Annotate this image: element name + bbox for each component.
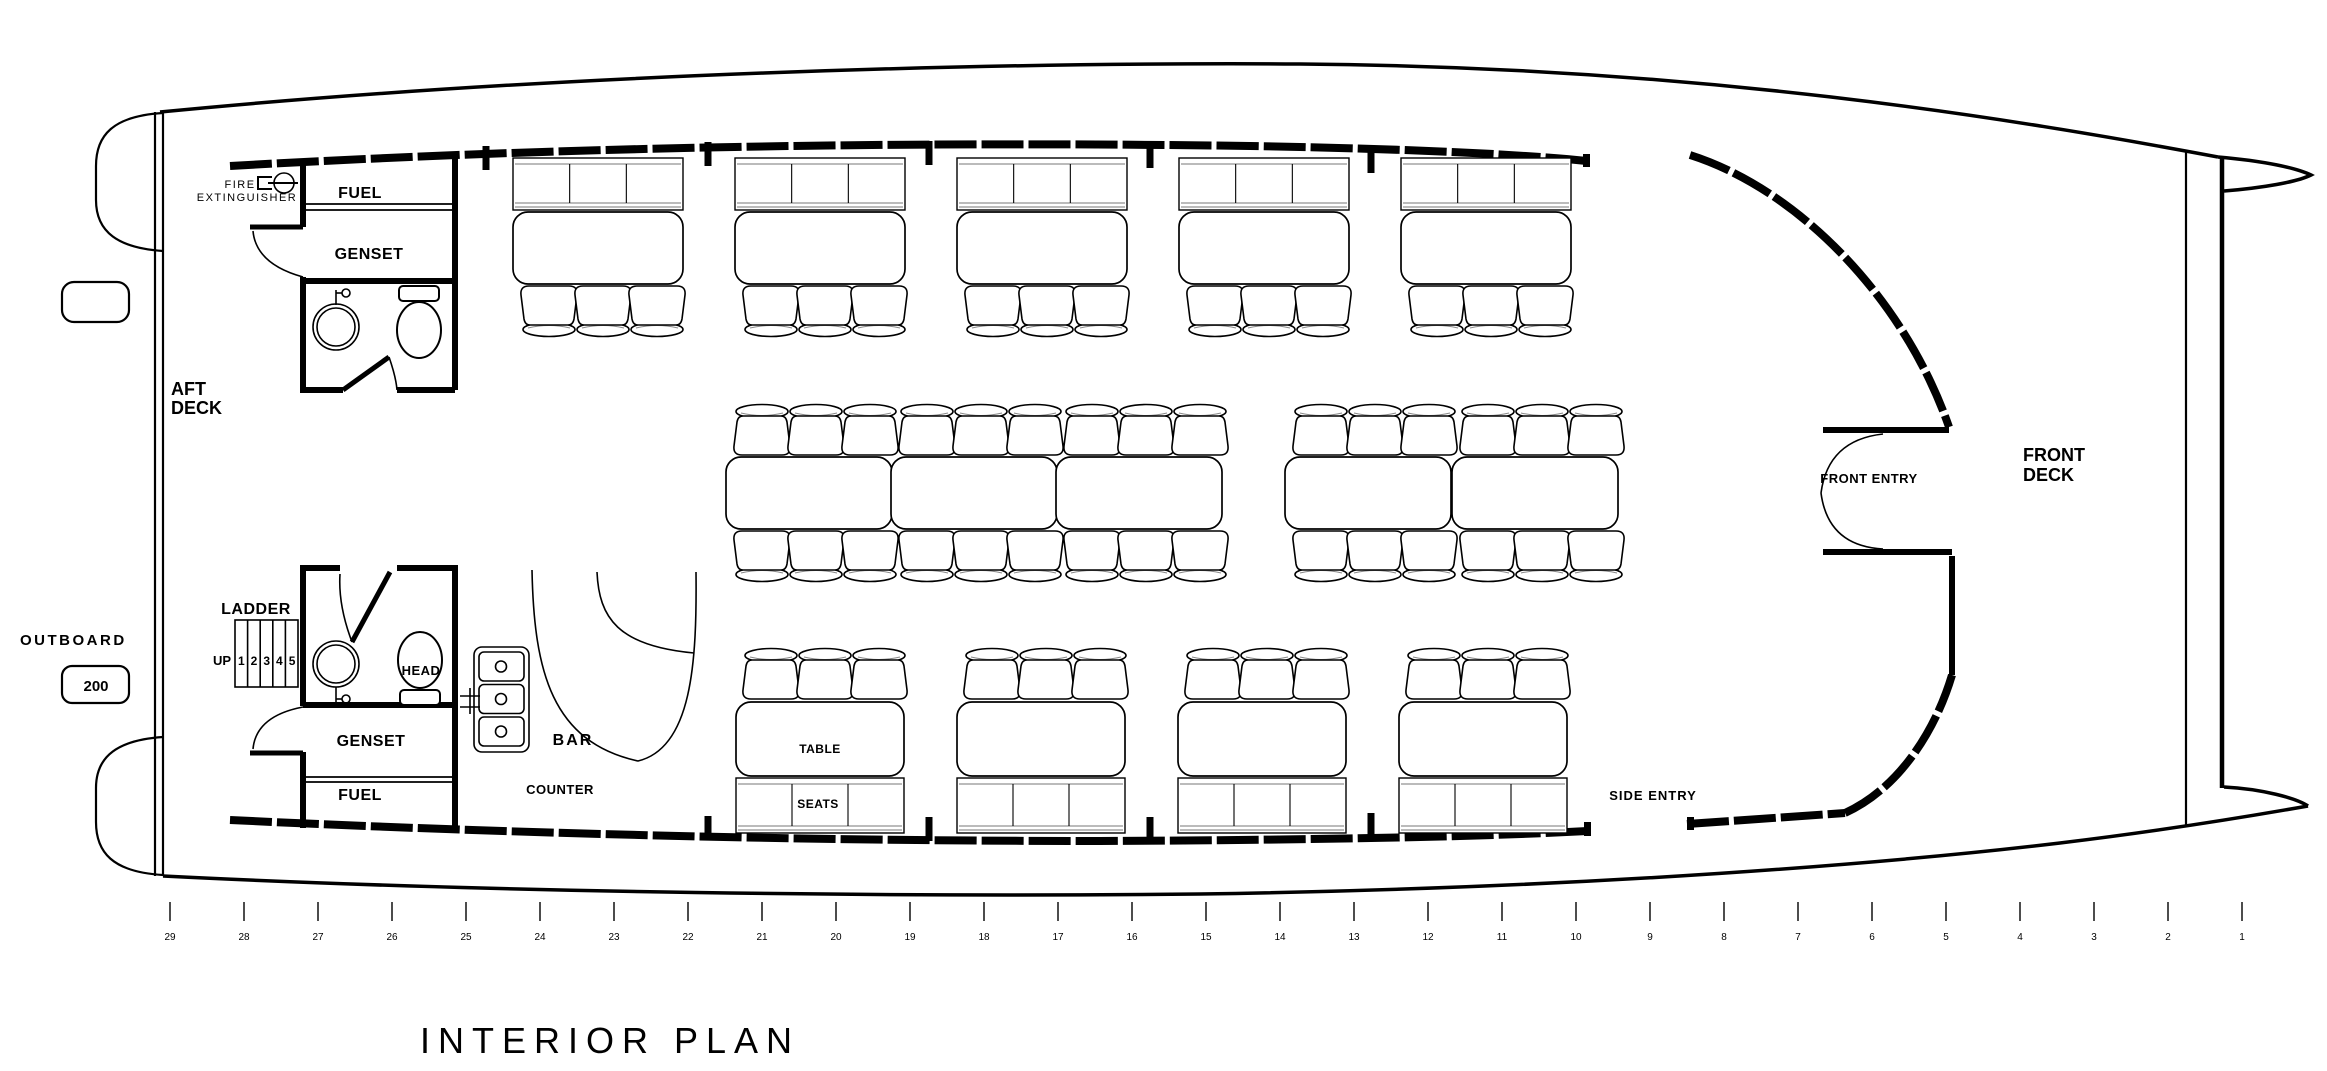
- station-ruler: 2928272625242322212019181716151413121110…: [164, 902, 2245, 943]
- ruler-label: 25: [460, 932, 472, 943]
- ruler-label: 12: [1422, 932, 1434, 943]
- toilet-icon: [397, 302, 441, 358]
- ruler-label: 11: [1497, 932, 1508, 943]
- label-ladder-up: UP: [213, 653, 231, 668]
- ladder-step-label: 1: [238, 654, 245, 668]
- bench-seat: [1178, 778, 1346, 833]
- ruler-label: 18: [978, 932, 990, 943]
- chair-icon: [629, 286, 685, 337]
- table: [957, 212, 1127, 284]
- chair-icon: [851, 286, 907, 337]
- label-side-entry: SIDE ENTRY: [1609, 788, 1697, 803]
- chair-icon: [797, 286, 853, 337]
- label-aft-deck-line2: DECK: [171, 398, 222, 418]
- ruler-label: 28: [238, 932, 250, 943]
- toilet-tank-icon: [400, 690, 440, 705]
- chair-icon: [953, 405, 1009, 456]
- label-table: TABLE: [799, 742, 841, 756]
- ladder-step-label: 2: [251, 654, 258, 668]
- bench-seat: [957, 158, 1127, 210]
- door-leaf: [343, 357, 389, 390]
- chair-icon: [1514, 531, 1570, 582]
- label-counter: COUNTER: [526, 782, 594, 797]
- chair-icon: [1514, 649, 1570, 700]
- ladder-step-label: 5: [289, 654, 296, 668]
- drain-icon: [496, 694, 507, 705]
- chair-icon: [575, 286, 631, 337]
- ruler-label: 7: [1795, 932, 1801, 943]
- interior-plan-drawing: 12345 2928272625242322212019181716151413…: [0, 0, 2327, 1071]
- chair-icon: [851, 649, 907, 700]
- door-swing-arc: [340, 574, 352, 642]
- label-fire-line1: FIRE: [224, 179, 255, 191]
- stern-sponson-bottom: [96, 737, 163, 875]
- ruler-label: 29: [164, 932, 176, 943]
- ruler-label: 24: [534, 932, 546, 943]
- ruler-label: 19: [904, 932, 916, 943]
- chair-icon: [1019, 286, 1075, 337]
- bench-seat: [1178, 778, 1346, 833]
- bench-seat: [513, 158, 683, 210]
- toilet-tank-icon: [399, 286, 439, 301]
- wall-post: [926, 817, 933, 841]
- chair-icon: [1007, 405, 1063, 456]
- faucet-icon: [342, 695, 350, 703]
- ruler-label: 1: [2239, 932, 2245, 943]
- label-fire-line2: EXTINGUISHER: [197, 192, 298, 204]
- chair-icon: [797, 649, 853, 700]
- cabin-wall-bottom: [230, 820, 1588, 841]
- chair-icon: [1064, 531, 1120, 582]
- wall-post: [1368, 813, 1375, 837]
- table: [726, 457, 892, 529]
- ruler-label: 13: [1348, 932, 1360, 943]
- ruler-label: 2: [2165, 932, 2171, 943]
- bench-seat: [957, 778, 1125, 833]
- table: [735, 212, 905, 284]
- side-entry-jamb-left: [1584, 822, 1591, 836]
- bow-horn-top: [2218, 157, 2311, 191]
- toilet-icon: [398, 632, 442, 688]
- chair-icon: [1073, 286, 1129, 337]
- chair-icon: [1185, 649, 1241, 700]
- chair-icon: [953, 531, 1009, 582]
- ruler-label: 8: [1721, 932, 1727, 943]
- cabin-wall-top: [230, 144, 1587, 166]
- chair-icon: [1239, 649, 1295, 700]
- ruler-label: 14: [1274, 932, 1286, 943]
- bench-seat: [1399, 778, 1567, 833]
- label-ladder: LADDER: [221, 601, 291, 618]
- cabin-front-sweep-bottom: [1845, 675, 1952, 813]
- chair-icon: [1406, 649, 1462, 700]
- ladder-step-label: 3: [263, 654, 270, 668]
- table: [1056, 457, 1222, 529]
- table: [736, 702, 904, 776]
- sink-icon: [317, 645, 355, 683]
- side-entry-wall: [1687, 813, 1845, 824]
- table: [1178, 702, 1346, 776]
- bar-sink-basin: [479, 652, 524, 681]
- chair-icon: [1293, 531, 1349, 582]
- chair-icon: [743, 286, 799, 337]
- ruler-label: 4: [2017, 932, 2023, 943]
- wall-post: [926, 141, 933, 165]
- sink-icon: [317, 308, 355, 346]
- table: [891, 457, 1057, 529]
- chair-icon: [1293, 649, 1349, 700]
- wall-post: [1147, 144, 1154, 168]
- chair-icon: [734, 531, 790, 582]
- label-fuel-top: FUEL: [338, 185, 382, 202]
- table: [957, 702, 1125, 776]
- chair-icon: [1514, 405, 1570, 456]
- door-swing-arc: [253, 231, 303, 277]
- ladder-step-numbers: 12345: [238, 654, 296, 668]
- wall-post: [705, 142, 712, 166]
- chair-icon: [1118, 405, 1174, 456]
- chair-icon: [1172, 405, 1228, 456]
- label-seats: SEATS: [797, 797, 839, 811]
- chair-icon: [842, 405, 898, 456]
- drain-icon: [496, 661, 507, 672]
- ruler-label: 3: [2091, 932, 2097, 943]
- label-front-entry: FRONT ENTRY: [1820, 471, 1917, 486]
- bench-seat: [957, 158, 1127, 210]
- chair-icon: [1007, 531, 1063, 582]
- label-genset-bottom: GENSET: [337, 733, 406, 750]
- chair-icon: [1347, 405, 1403, 456]
- label-outboard: OUTBOARD: [20, 632, 127, 649]
- ruler-label: 5: [1943, 932, 1949, 943]
- bow-horn-bottom: [2224, 787, 2308, 806]
- counter-inner-edge: [597, 572, 694, 653]
- wall-post: [1147, 817, 1154, 841]
- chair-icon: [788, 531, 844, 582]
- bench-seat: [1401, 158, 1571, 210]
- chair-icon: [1463, 286, 1519, 337]
- ruler-label: 21: [756, 932, 768, 943]
- wall-end-cap: [1583, 154, 1590, 167]
- chair-icon: [521, 286, 577, 337]
- wall-post: [483, 146, 490, 170]
- chair-icon: [734, 405, 790, 456]
- bench-seat: [1179, 158, 1349, 210]
- front-entry-door-arc-lower: [1821, 493, 1883, 549]
- ruler-label: 22: [682, 932, 694, 943]
- chair-icon: [899, 405, 955, 456]
- bench-seat: [735, 158, 905, 210]
- chair-icon: [1401, 405, 1457, 456]
- wall-post: [705, 816, 712, 840]
- chair-icon: [1568, 531, 1624, 582]
- chair-icon: [1347, 531, 1403, 582]
- chair-icon: [964, 649, 1020, 700]
- table: [1285, 457, 1451, 529]
- label-head: HEAD: [402, 663, 441, 678]
- bench-seat: [1179, 158, 1349, 210]
- chair-icon: [1118, 531, 1174, 582]
- chair-icon: [1401, 531, 1457, 582]
- page-title: INTERIOR PLAN: [420, 1020, 800, 1061]
- label-bar: BAR: [553, 732, 594, 749]
- cabin-front-sweep-top: [1690, 155, 1949, 427]
- door-swing-arc: [253, 707, 303, 749]
- ruler-label: 20: [830, 932, 842, 943]
- label-aft-deck-line1: AFT: [171, 379, 206, 399]
- ruler-label: 23: [608, 932, 620, 943]
- chair-icon: [1018, 649, 1074, 700]
- door-leaf: [352, 572, 390, 642]
- bench-seat: [735, 158, 905, 210]
- ruler-label: 26: [386, 932, 398, 943]
- bench-seat: [513, 158, 683, 210]
- bar-sink-basin: [479, 685, 524, 714]
- sink-icon: [313, 304, 359, 350]
- chair-icon: [1295, 286, 1351, 337]
- bench-seat: [957, 778, 1125, 833]
- chair-icon: [1460, 649, 1516, 700]
- table: [1452, 457, 1618, 529]
- label-front-deck-line2: DECK: [2023, 465, 2074, 485]
- table: [1401, 212, 1571, 284]
- bar-sink-basin: [479, 717, 524, 746]
- chair-icon: [842, 531, 898, 582]
- chair-icon: [1409, 286, 1465, 337]
- label-outboard-power: 200: [83, 678, 108, 695]
- chair-icon: [1072, 649, 1128, 700]
- outboard-motor-top: [62, 282, 129, 322]
- bench-seat: [1401, 158, 1571, 210]
- label-genset-top: GENSET: [335, 246, 404, 263]
- ruler-label: 10: [1570, 932, 1582, 943]
- ladder-step-label: 4: [276, 654, 283, 668]
- chair-icon: [1064, 405, 1120, 456]
- chair-icon: [1241, 286, 1297, 337]
- chair-icon: [743, 649, 799, 700]
- chair-icon: [1517, 286, 1573, 337]
- bench-seat: [1399, 778, 1567, 833]
- chair-icon: [1293, 405, 1349, 456]
- stern-sponson-top: [96, 113, 163, 251]
- label-front-deck-line1: FRONT: [2023, 445, 2085, 465]
- table: [513, 212, 683, 284]
- sink-icon: [313, 641, 359, 687]
- chair-icon: [1568, 405, 1624, 456]
- side-entry-jamb-right: [1687, 817, 1694, 830]
- fire-extinguisher-icon: [258, 173, 298, 193]
- ruler-label: 27: [312, 932, 324, 943]
- door-swing-arc: [389, 357, 397, 390]
- label-fuel-bottom: FUEL: [338, 787, 382, 804]
- chair-icon: [1172, 531, 1228, 582]
- chair-icon: [1187, 286, 1243, 337]
- ruler-label: 9: [1647, 932, 1653, 943]
- ruler-label: 6: [1869, 932, 1875, 943]
- wall-post: [1368, 149, 1375, 173]
- chair-icon: [965, 286, 1021, 337]
- chair-icon: [899, 531, 955, 582]
- drain-icon: [496, 726, 507, 737]
- table: [1179, 212, 1349, 284]
- interior-plan-sheet: 12345 2928272625242322212019181716151413…: [0, 0, 2327, 1071]
- seating-furniture: [513, 158, 1624, 833]
- ruler-label: 15: [1200, 932, 1212, 943]
- chair-icon: [788, 405, 844, 456]
- chair-icon: [1460, 405, 1516, 456]
- chair-icon: [1460, 531, 1516, 582]
- ruler-label: 16: [1126, 932, 1138, 943]
- ruler-label: 17: [1052, 932, 1064, 943]
- table: [1399, 702, 1567, 776]
- faucet-icon: [342, 289, 350, 297]
